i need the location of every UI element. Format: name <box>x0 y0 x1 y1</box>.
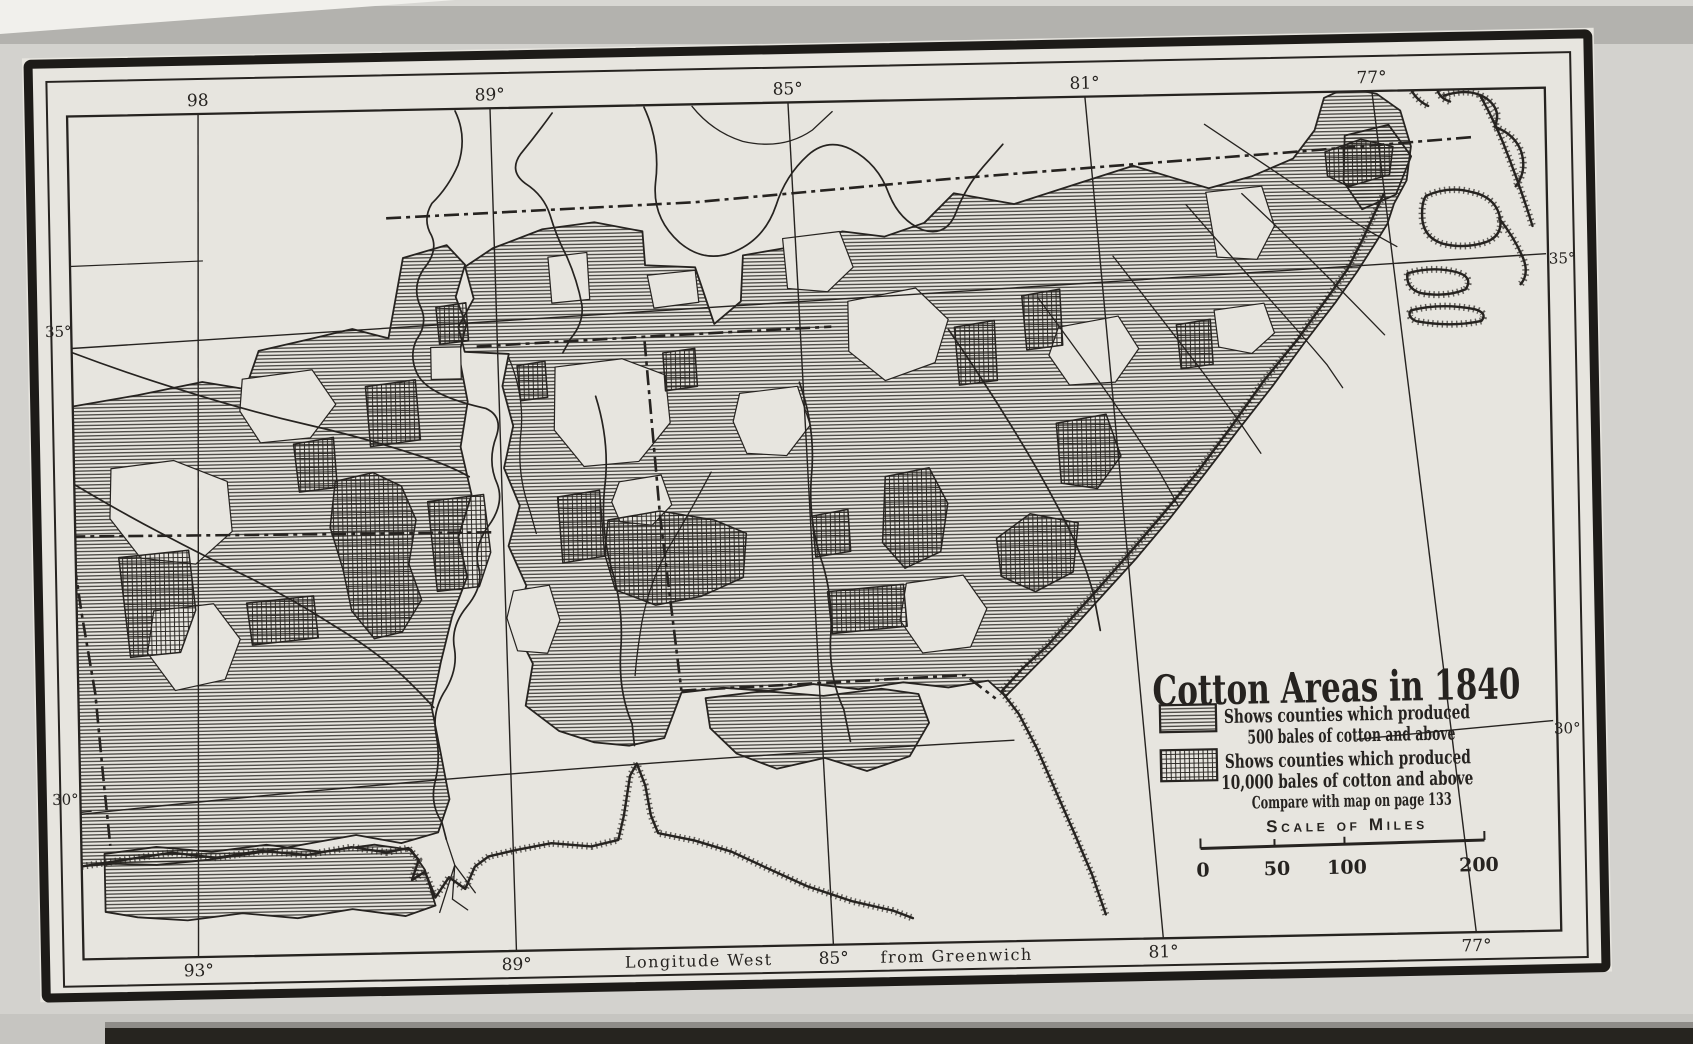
page-bottom-shadow <box>105 1022 1693 1029</box>
legend-swatch-10000 <box>1161 749 1218 781</box>
meridian-label-bottom-85: 85° <box>818 948 849 969</box>
legend-500-line2: 500 bales of cotton and above <box>1247 723 1455 749</box>
meridian-label-top-81: 81° <box>1069 73 1100 94</box>
scanned-page: Cotton Areas in 1840 Shows counties whic… <box>0 0 1693 1044</box>
high-production-county <box>428 494 492 591</box>
non-cotton-clearing <box>431 347 462 380</box>
high-production-county <box>1022 289 1063 350</box>
legend-swatch-500 <box>1160 704 1217 732</box>
scale-tick-label-200: 200 <box>1459 854 1499 877</box>
latitude-label-right-30: 30° <box>1554 719 1581 738</box>
map-sheet: Cotton Areas in 1840 Shows counties whic… <box>22 28 1612 1003</box>
meridian-label-top-85: 85° <box>772 79 803 100</box>
meridian-label-top-89: 89° <box>474 85 505 106</box>
high-production-county <box>827 584 907 634</box>
high-production-county <box>293 437 337 492</box>
latitude-label-right-35: 35° <box>1549 249 1576 268</box>
scale-tick-label-100: 100 <box>1327 856 1367 879</box>
scale-bar-title: Scale of Miles <box>1266 814 1426 836</box>
high-production-county <box>663 348 698 391</box>
bottom-caption-longitude-west: Longitude West <box>625 950 773 972</box>
scale-tick-label-50: 50 <box>1264 858 1291 881</box>
next-page-edge <box>105 1028 1693 1044</box>
meridian-label-bottom-81: 81° <box>1148 942 1179 963</box>
meridian-label-bottom-77: 77° <box>1461 936 1492 957</box>
meridian-label-top-98: 98 <box>187 91 209 111</box>
meridian-label-bottom-89: 89° <box>501 955 532 976</box>
bottom-caption-from-greenwich: from Greenwich <box>880 945 1033 967</box>
meridian-label-bottom-93: 93° <box>184 961 215 982</box>
high-production-county <box>119 550 197 657</box>
legend-note: Compare with map on page 133 <box>1252 790 1452 814</box>
high-production-county <box>517 361 548 401</box>
latitude-label-left-35: 35° <box>45 322 72 341</box>
high-production-county <box>954 320 997 385</box>
high-production-county <box>246 596 318 645</box>
scale-tick-label-0: 0 <box>1196 859 1210 881</box>
cotton-map-figure: Cotton Areas in 1840 Shows counties whic… <box>0 0 1693 1044</box>
meridian-label-top-77: 77° <box>1356 68 1387 89</box>
latitude-label-left-30: 30° <box>52 790 79 809</box>
high-production-county <box>365 380 420 447</box>
high-production-county <box>557 490 604 563</box>
non-cotton-clearing <box>647 270 699 308</box>
